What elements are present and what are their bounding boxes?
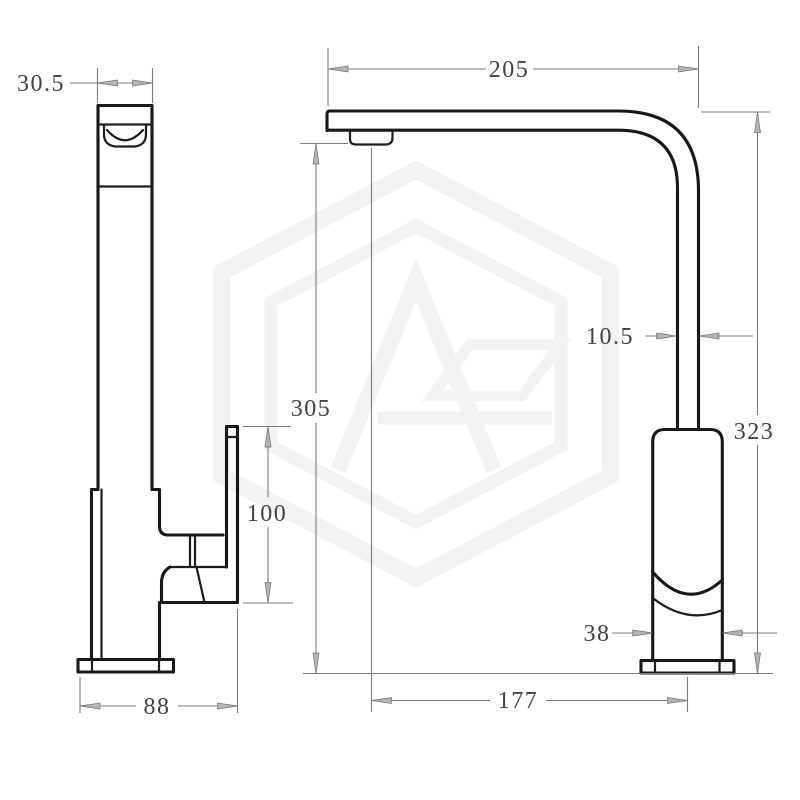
side-body-shelf	[152, 490, 223, 536]
dim-arrow	[265, 583, 271, 604]
side-valve-stem	[190, 535, 195, 567]
dim-arrow	[313, 144, 319, 165]
side-pivot-diagonal	[197, 567, 205, 603]
front-base-plate-dividers	[655, 661, 720, 674]
faucet-dimension-drawing: 30.5 100 88 205 305 10.5	[0, 0, 800, 800]
technical-drawing-page: 30.5 100 88 205 305 10.5	[0, 0, 800, 800]
dim-arrow	[218, 703, 238, 709]
dim-label-spout-head-width: 30.5	[17, 71, 65, 97]
dim-arrow	[133, 80, 153, 86]
front-handle-seam-arc-2	[653, 598, 723, 615]
dim-arrow	[699, 333, 719, 339]
dimension-10-5: 10.5	[586, 324, 753, 350]
dim-label-body-width: 38	[584, 621, 611, 647]
watermark-monogram-stroke	[338, 280, 494, 470]
side-base-plate-dividers	[92, 660, 159, 673]
dim-arrow	[668, 698, 688, 704]
dim-arrow	[679, 66, 699, 72]
front-body	[653, 430, 723, 661]
side-aerator-inner-arc	[107, 130, 143, 140]
dim-label-overall-height: 323	[734, 419, 775, 445]
dim-label-handle-height: 100	[247, 501, 288, 527]
dim-label-outlet-to-base-distance: 177	[498, 688, 539, 714]
dim-arrow	[372, 698, 392, 704]
side-body-left-edge	[92, 490, 99, 660]
side-pivot-left-curve	[162, 567, 171, 603]
dimension-205: 205	[328, 46, 699, 108]
dim-label-side-overall-width: 88	[144, 694, 171, 720]
side-spout-column	[98, 106, 152, 490]
dim-arrow	[98, 80, 118, 86]
dim-label-spout-reach: 205	[489, 57, 530, 83]
dim-arrow	[633, 630, 653, 636]
dim-arrow	[313, 653, 319, 674]
dim-arrow	[722, 630, 742, 636]
dim-arrow	[80, 703, 100, 709]
dim-arrow	[755, 112, 761, 133]
front-handle-seam-arc-1	[653, 572, 723, 594]
dim-arrow	[328, 66, 348, 72]
dim-arrow	[657, 333, 677, 339]
dim-label-spout-clearance-height: 305	[291, 396, 332, 422]
side-aerator-cup	[104, 125, 146, 147]
dimension-38: 38	[584, 621, 778, 647]
dim-arrow	[755, 653, 761, 674]
dim-label-spout-tube-width: 10.5	[586, 324, 634, 350]
front-aerator	[350, 130, 393, 144]
dimension-30-5: 30.5	[17, 68, 153, 103]
